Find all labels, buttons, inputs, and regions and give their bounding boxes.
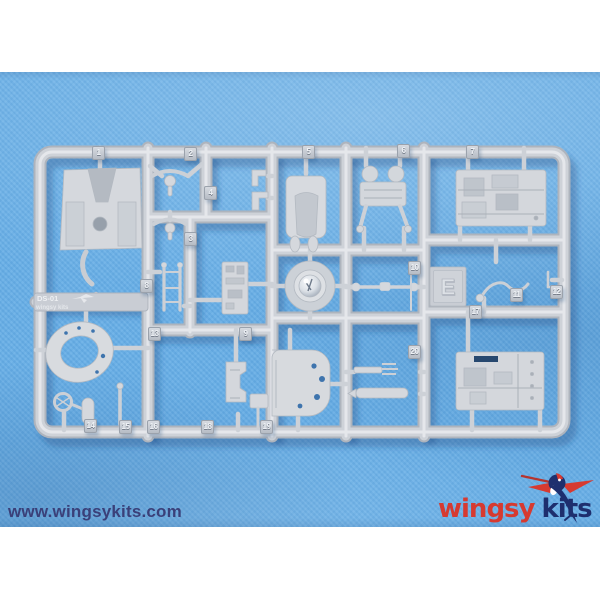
part-firewall-bulkhead [272, 350, 330, 416]
product-photo: DS-01 wingsy kits [0, 0, 600, 600]
part-sidewall-bottom-right [456, 352, 544, 410]
part-control-linkage [476, 272, 556, 302]
sprue-code-text: DS-01 [37, 294, 58, 303]
sprue-brand-text: wingsy kits [35, 305, 69, 311]
sprue-letter: E [441, 275, 456, 300]
watermark-url: www.wingsykits.com [8, 501, 182, 522]
part-cowl-ring [285, 261, 335, 311]
part-engine-bearer [357, 166, 412, 233]
part-rod [352, 262, 418, 310]
part-instrument-panel [222, 262, 248, 314]
part-cockpit-floor [60, 168, 142, 284]
sprue-letter-tab: E E [430, 267, 466, 306]
part-seat [286, 176, 326, 252]
hummingbird-icon [520, 462, 598, 526]
part-sidewall-top-right [456, 170, 546, 226]
part-bracket [226, 362, 246, 402]
part-frame-ladder [162, 263, 183, 311]
sprue-label-rail: DS-01 wingsy kits [34, 293, 148, 311]
